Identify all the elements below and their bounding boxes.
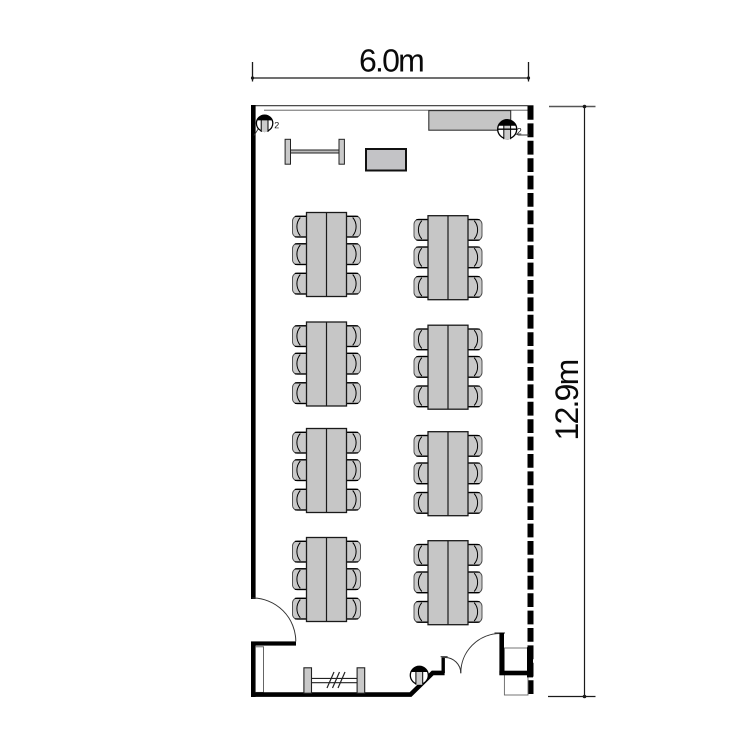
svg-text:2: 2 <box>274 120 279 130</box>
svg-text:6.0m: 6.0m <box>359 42 423 78</box>
svg-text:2: 2 <box>517 126 522 136</box>
svg-text:12.9m: 12.9m <box>549 360 585 440</box>
